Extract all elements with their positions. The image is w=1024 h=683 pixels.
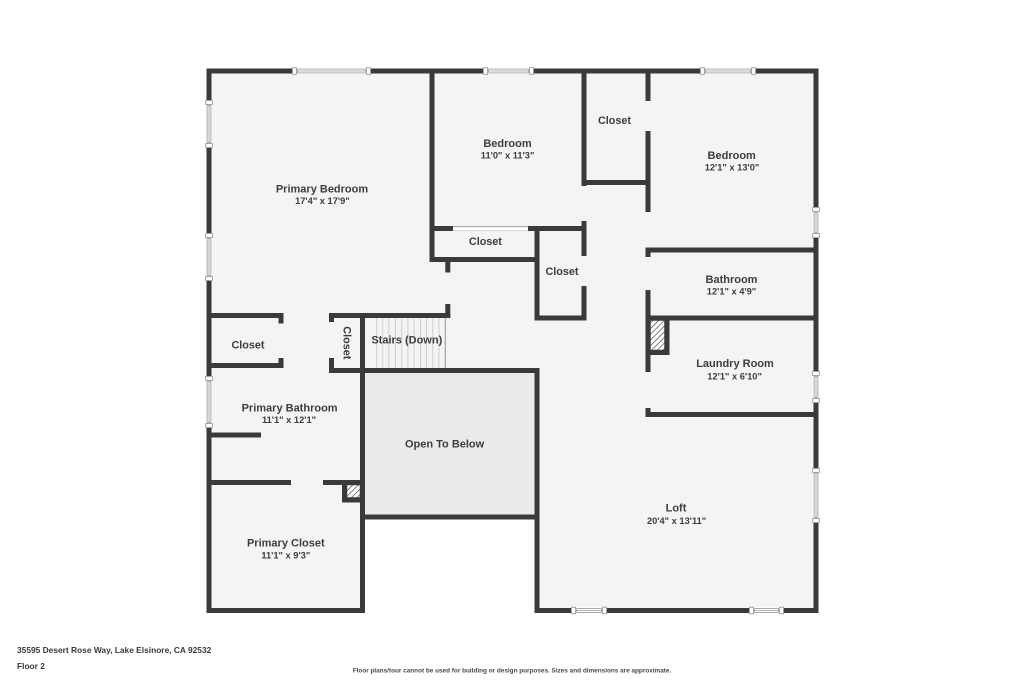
svg-text:Open To Below: Open To Below: [405, 439, 485, 451]
svg-text:Stairs (Down): Stairs (Down): [371, 334, 442, 346]
svg-text:17'4" x 17'9": 17'4" x 17'9": [295, 196, 350, 206]
svg-text:Closet: Closet: [340, 326, 352, 359]
svg-text:Loft: Loft: [666, 503, 687, 515]
svg-text:Floor 2: Floor 2: [17, 661, 45, 671]
svg-text:Floor plans/tour cannot be use: Floor plans/tour cannot be used for buil…: [353, 668, 672, 675]
svg-text:11'1" x 12'1": 11'1" x 12'1": [262, 415, 316, 425]
svg-text:35595 Desert Rose Way, Lake El: 35595 Desert Rose Way, Lake Elsinore, CA…: [17, 645, 212, 655]
svg-text:12'1" x 6'10": 12'1" x 6'10": [707, 371, 762, 381]
svg-text:Closet: Closet: [232, 339, 265, 351]
svg-text:Primary Closet: Primary Closet: [247, 538, 325, 550]
svg-text:11'1" x 9'3": 11'1" x 9'3": [261, 551, 310, 561]
svg-text:12'1" x 4'9": 12'1" x 4'9": [707, 286, 756, 296]
svg-text:Bedroom: Bedroom: [483, 138, 532, 150]
svg-text:Laundry Room: Laundry Room: [696, 358, 774, 370]
svg-text:Closet: Closet: [546, 266, 579, 278]
svg-text:20'4" x 13'11": 20'4" x 13'11": [647, 516, 706, 526]
svg-text:Closet: Closet: [598, 115, 631, 127]
svg-text:Primary Bathroom: Primary Bathroom: [242, 403, 338, 415]
svg-text:Bathroom: Bathroom: [706, 274, 758, 286]
svg-text:Closet: Closet: [469, 236, 502, 248]
svg-text:12'1" x 13'0": 12'1" x 13'0": [705, 162, 760, 172]
svg-text:11'0" x 11'3": 11'0" x 11'3": [481, 151, 535, 161]
svg-text:Bedroom: Bedroom: [708, 150, 757, 162]
svg-text:Primary Bedroom: Primary Bedroom: [276, 183, 369, 195]
